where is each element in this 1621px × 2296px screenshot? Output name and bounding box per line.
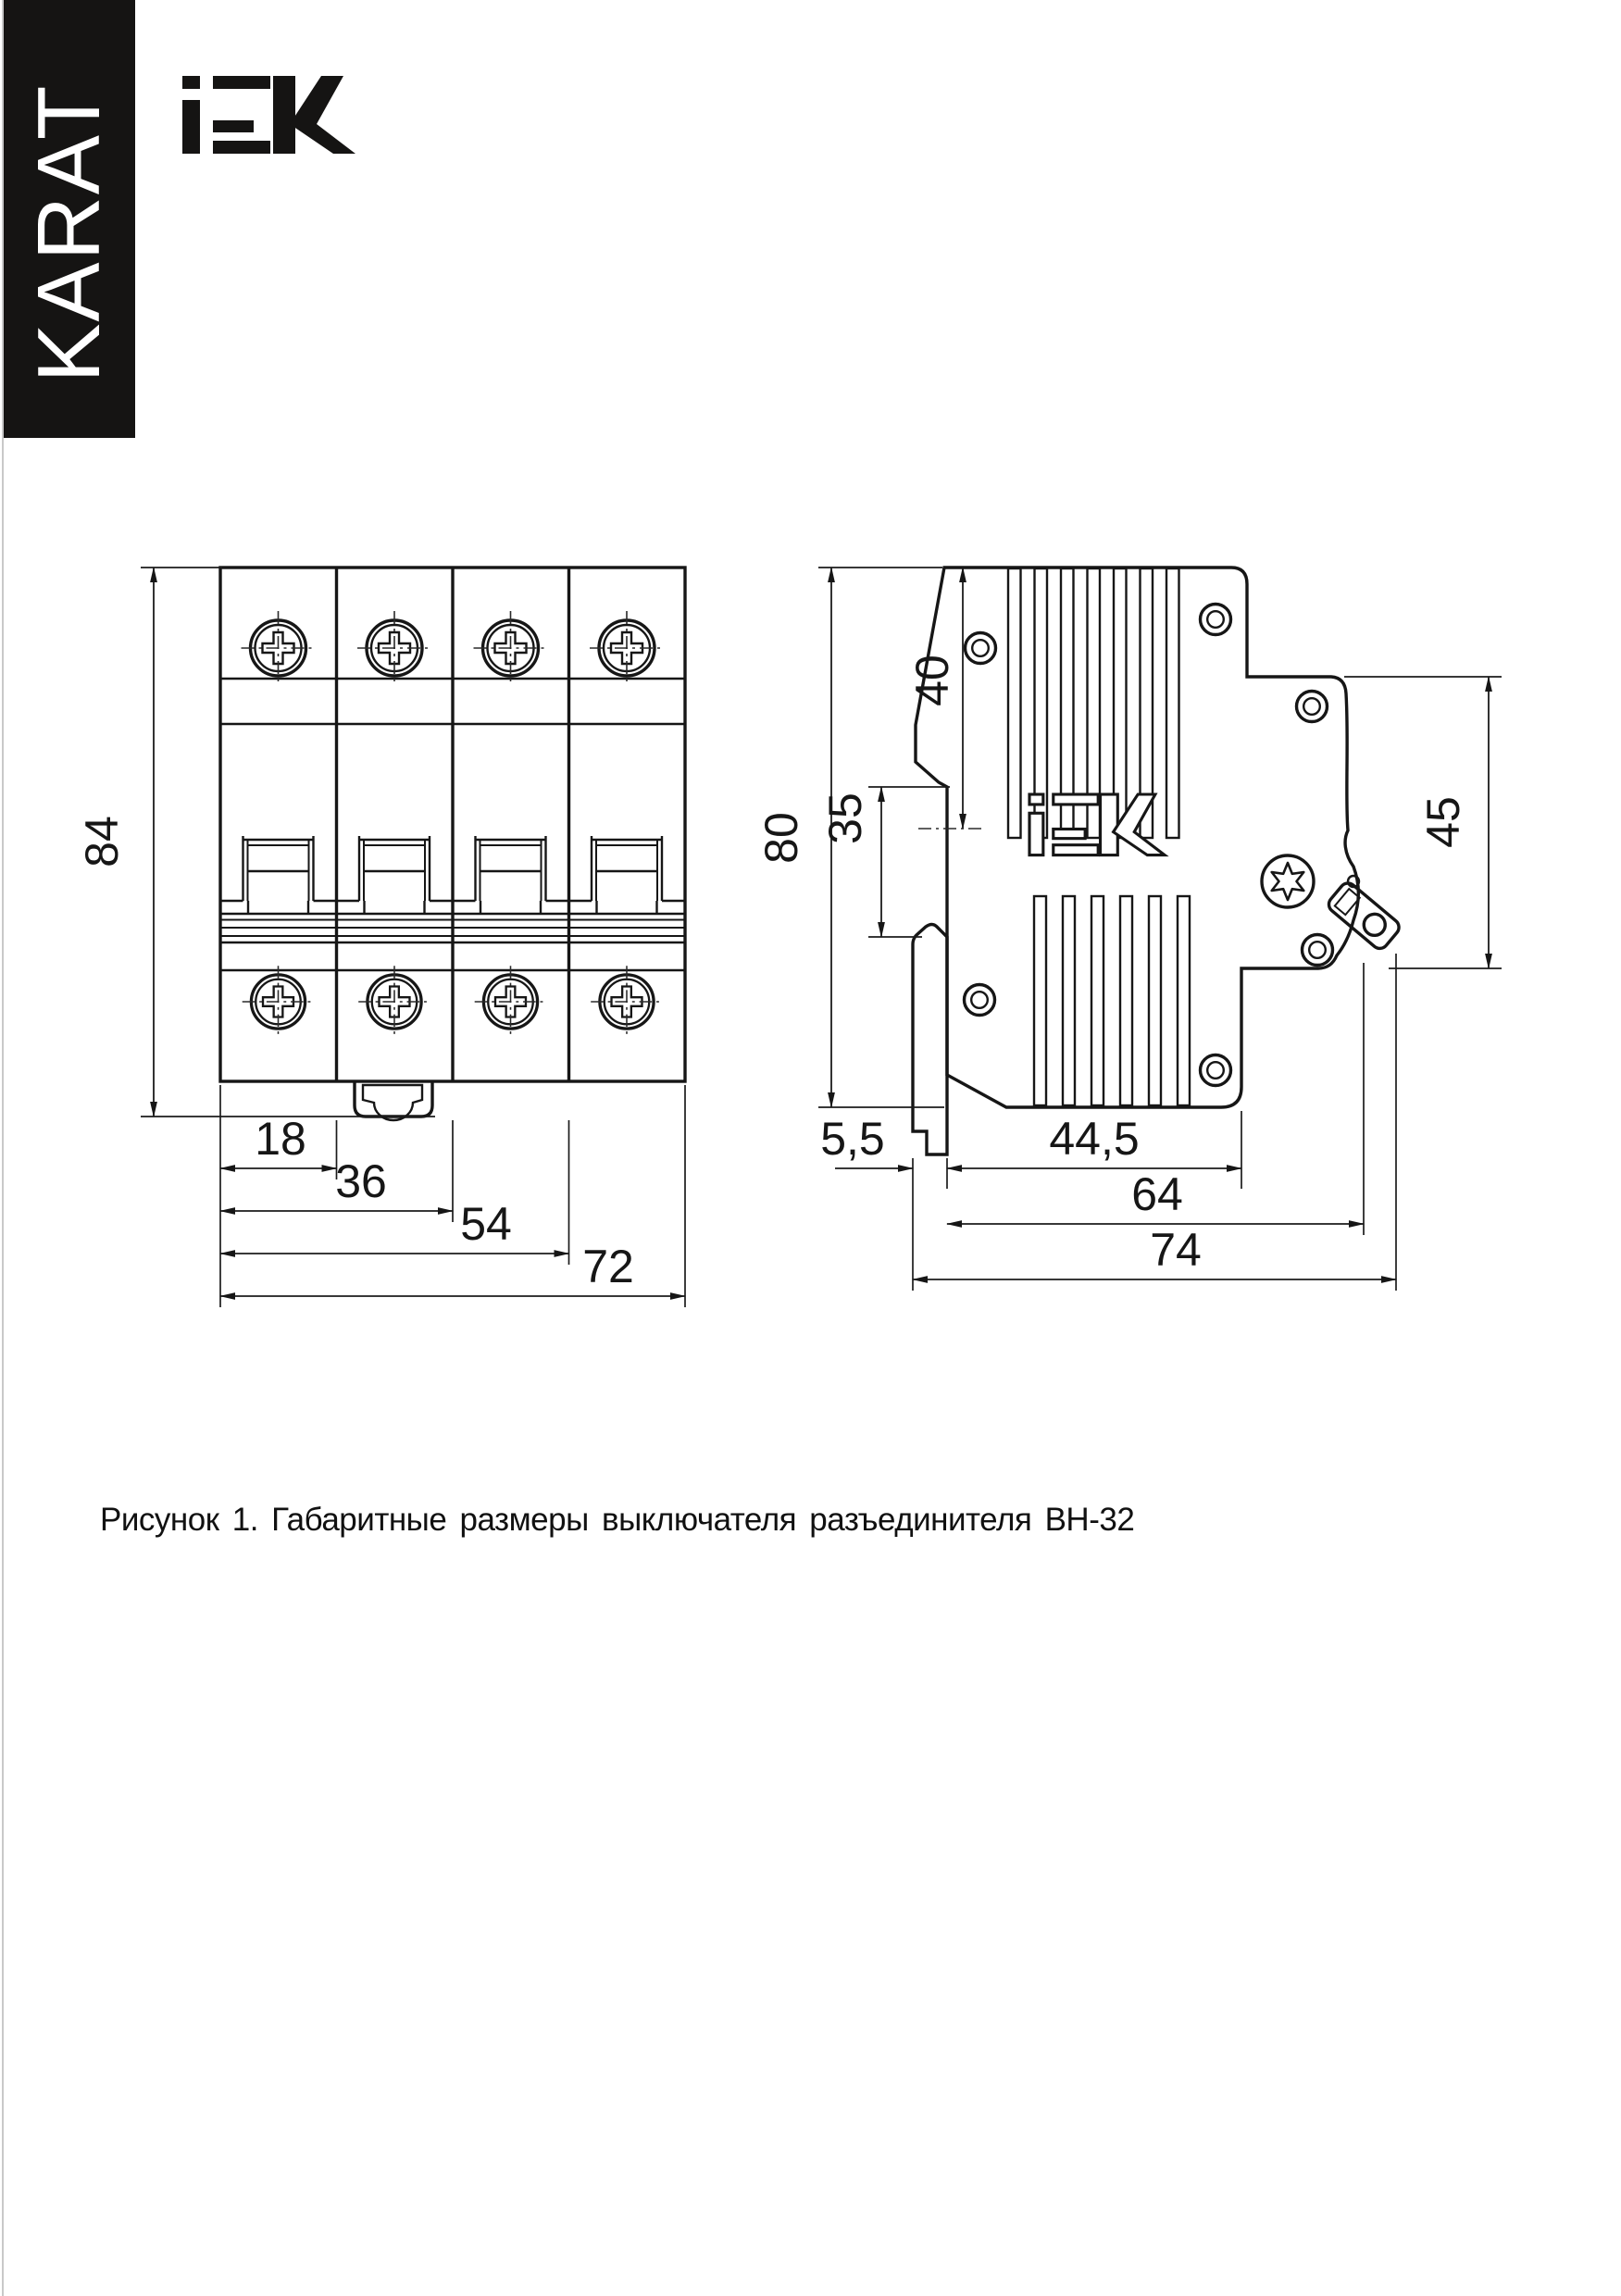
dim-45-label: 45	[1417, 796, 1469, 848]
dim-80-label: 80	[755, 812, 807, 864]
screw-icon	[475, 966, 547, 1038]
dim-74-label: 74	[1150, 1224, 1202, 1276]
din-clip	[355, 1081, 432, 1120]
dim-72-label: 72	[582, 1241, 634, 1292]
screw-icon	[591, 966, 663, 1038]
side-view-dimensions: 80 40 35 45 5,5 44,5	[755, 568, 1502, 1291]
document-page: KARAT	[0, 0, 1621, 2296]
screw-icon	[243, 966, 315, 1038]
rivet-icon	[966, 633, 996, 664]
screw-icon	[590, 611, 664, 685]
iek-embossed-logo	[1029, 794, 1165, 855]
dim-5-5-label: 5,5	[820, 1113, 885, 1165]
dim-40-label: 40	[906, 655, 958, 706]
karat-banner: KARAT	[4, 0, 135, 438]
karat-logo-text: KARAT	[19, 84, 120, 383]
screw-icon	[357, 611, 431, 685]
rivet-icon	[1297, 692, 1328, 722]
dim-64-label: 64	[1131, 1168, 1183, 1220]
din-foot	[913, 925, 947, 1155]
rivet-icon	[1201, 1055, 1231, 1086]
dim-35-label: 35	[819, 792, 871, 844]
dim-54-label: 54	[460, 1198, 512, 1250]
screw-icon	[474, 611, 548, 685]
torx-screw-icon	[1262, 855, 1314, 907]
vent-slots-bottom	[1034, 896, 1190, 1105]
iek-logo	[182, 76, 355, 154]
dim-44-5-label: 44,5	[1049, 1113, 1139, 1165]
rivet-icon	[965, 985, 995, 1016]
terminal-lever	[1326, 880, 1403, 952]
dim-84-label: 84	[76, 816, 128, 867]
screw-icon	[358, 966, 430, 1038]
rivet-icon	[1201, 605, 1231, 635]
screw-icon	[242, 611, 316, 685]
front-view-drawing	[220, 568, 685, 1120]
dim-18-label: 18	[255, 1113, 306, 1165]
rivet-icon	[1303, 935, 1333, 966]
side-view-drawing	[913, 568, 1403, 1154]
figure-caption: Рисунок 1. Габаритные размеры выключател…	[100, 1502, 1303, 1539]
figure-canvas: 84 18 36 54 72	[0, 0, 1621, 2296]
dim-36-label: 36	[335, 1155, 387, 1207]
